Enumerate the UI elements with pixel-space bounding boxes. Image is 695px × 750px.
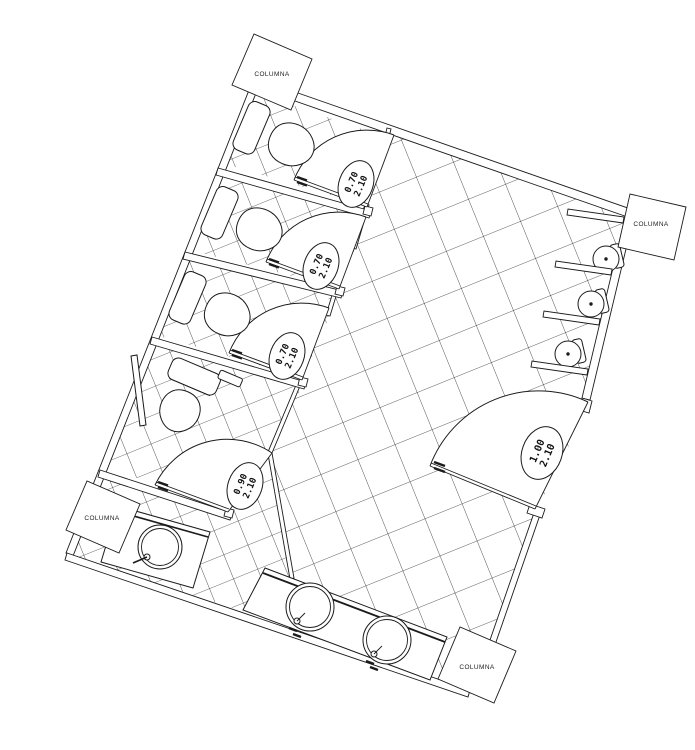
column-right: COLUMNA [618,194,686,260]
column-label-2: COLUMNA [633,221,669,228]
floor-plan-svg: COLUMNA COLUMNA COLUMNA COLUMNA 0.70 2.1… [0,0,695,750]
column-label-4: COLUMNA [459,664,495,671]
column-label-1: COLUMNA [254,71,290,78]
column-label-3: COLUMNA [84,515,120,522]
jamb-stall-1 [363,206,373,216]
floor-plan-page: COLUMNA COLUMNA COLUMNA COLUMNA 0.70 2.1… [0,0,695,750]
